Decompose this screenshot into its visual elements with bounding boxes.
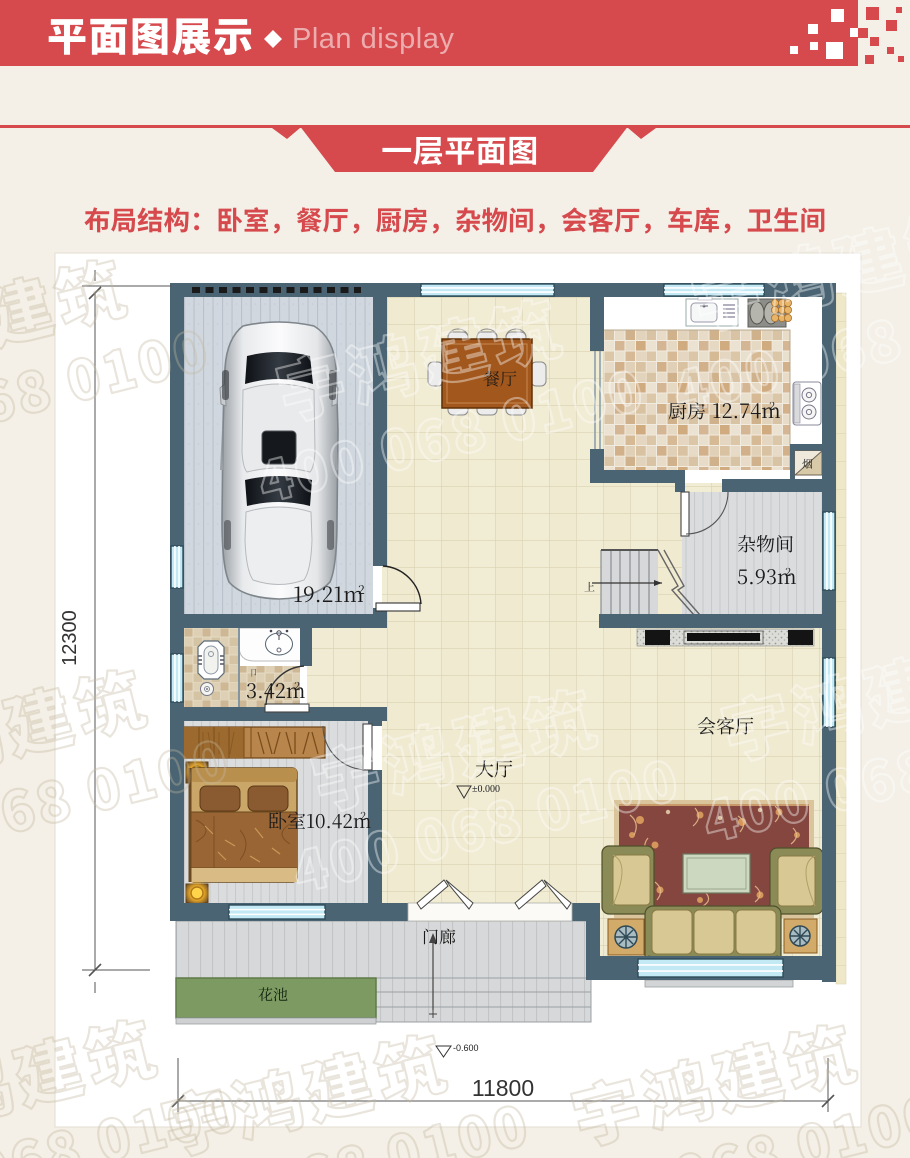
svg-text:11800: 11800 — [472, 1075, 534, 1101]
svg-text:12300: 12300 — [59, 610, 81, 666]
svg-text:Plan display: Plan display — [292, 23, 454, 55]
svg-text:±0.000: ±0.000 — [472, 784, 500, 795]
svg-text:-0.600: -0.600 — [453, 1043, 479, 1053]
